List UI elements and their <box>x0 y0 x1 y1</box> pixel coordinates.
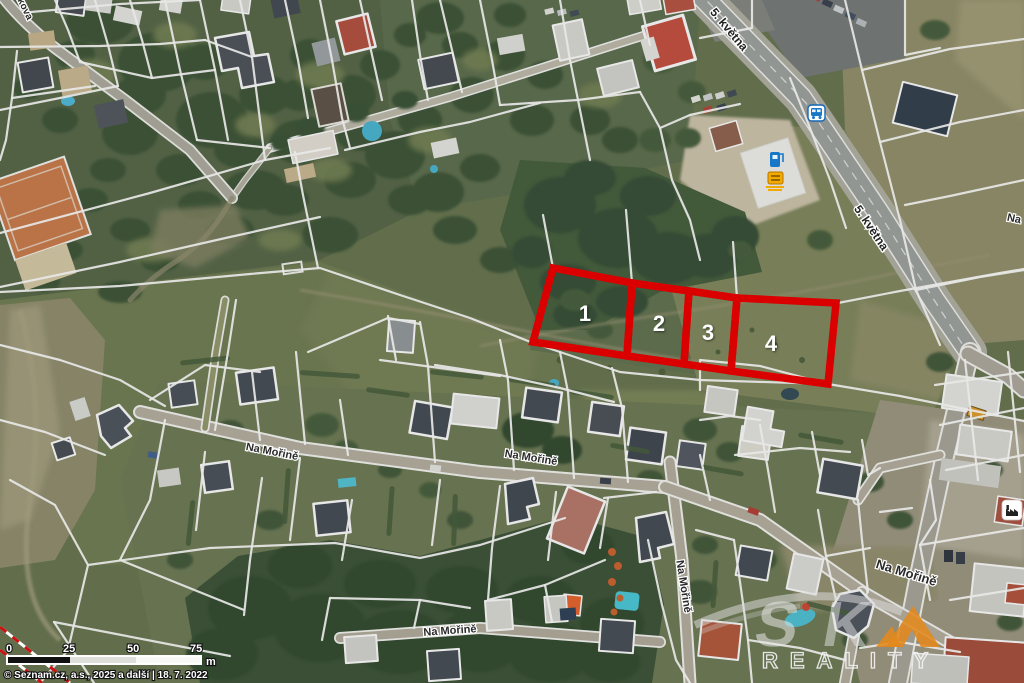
svg-text:© Seznam.cz, a.s., 2025 a dalš: © Seznam.cz, a.s., 2025 a další | 18. 7.… <box>4 670 208 681</box>
svg-text:4: 4 <box>765 331 778 356</box>
svg-text:75: 75 <box>190 643 202 655</box>
svg-text:REALITY: REALITY <box>762 648 940 673</box>
svg-text:m: m <box>206 656 216 668</box>
svg-text:2: 2 <box>653 311 665 336</box>
svg-text:25: 25 <box>63 643 75 655</box>
svg-text:1: 1 <box>579 301 591 326</box>
svg-text:0: 0 <box>6 643 12 655</box>
svg-text:50: 50 <box>127 643 139 655</box>
svg-text:3: 3 <box>702 320 714 345</box>
